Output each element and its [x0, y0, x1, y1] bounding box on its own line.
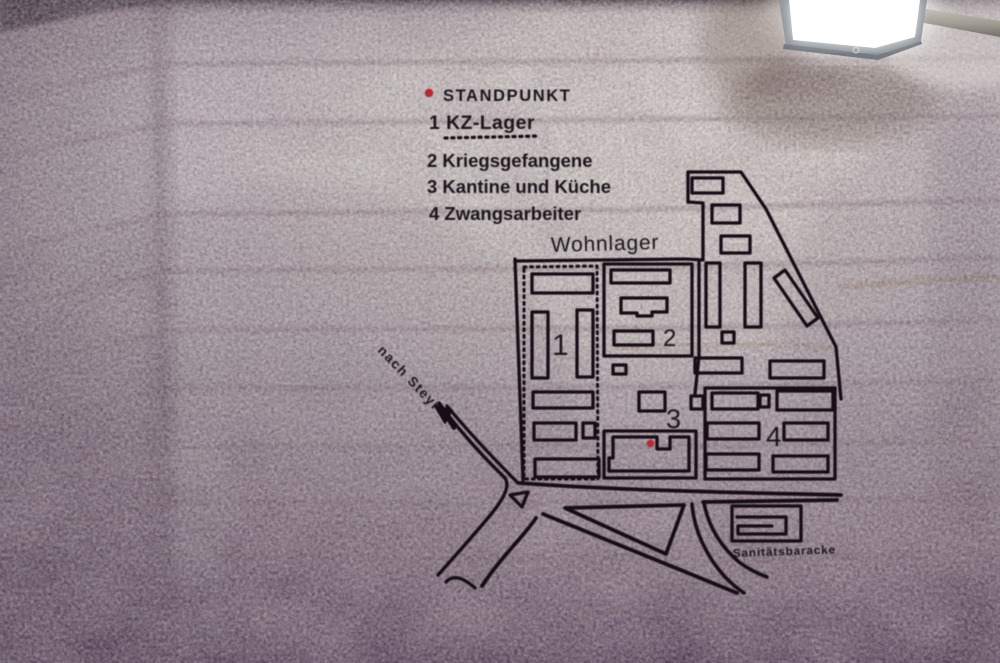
svg-text:4: 4 — [766, 421, 782, 452]
svg-text:Wohnlager: Wohnlager — [551, 231, 660, 257]
svg-text:1 KZ-Lager: 1 KZ-Lager — [429, 112, 535, 134]
svg-text:2: 2 — [663, 325, 676, 352]
svg-text:2 Kriegsgefangene: 2 Kriegsgefangene — [427, 150, 593, 171]
svg-text:3 Kantine und Küche: 3 Kantine und Küche — [427, 176, 611, 197]
svg-text:STANDPUNKT: STANDPUNKT — [443, 87, 571, 105]
svg-text:1: 1 — [552, 329, 569, 362]
svg-text:4 Zwangsarbeiter: 4 Zwangsarbeiter — [429, 203, 581, 224]
